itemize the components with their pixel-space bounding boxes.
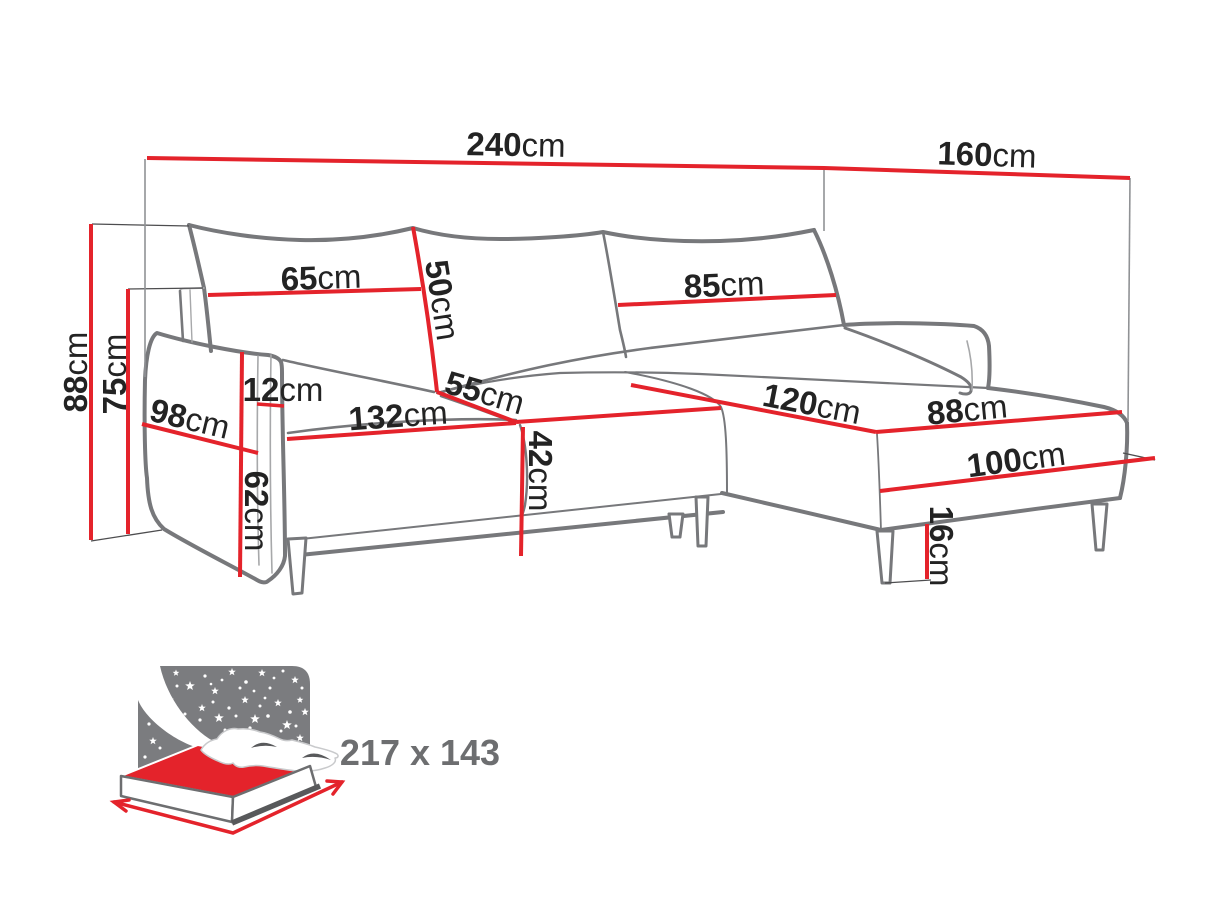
svg-text:132cm: 132cm	[347, 394, 448, 438]
svg-text:12cm: 12cm	[243, 371, 324, 408]
svg-text:217 x 143: 217 x 143	[340, 732, 500, 773]
svg-text:65cm: 65cm	[280, 258, 362, 298]
svg-text:88cm: 88cm	[925, 387, 1009, 432]
svg-text:88cm: 88cm	[57, 332, 94, 413]
svg-text:160cm: 160cm	[937, 134, 1037, 174]
svg-text:42cm: 42cm	[522, 431, 559, 512]
svg-text:240cm: 240cm	[466, 125, 566, 164]
svg-text:16cm: 16cm	[923, 506, 960, 587]
svg-text:62cm: 62cm	[238, 471, 275, 552]
svg-text:75cm: 75cm	[96, 334, 133, 415]
svg-text:85cm: 85cm	[683, 264, 765, 304]
